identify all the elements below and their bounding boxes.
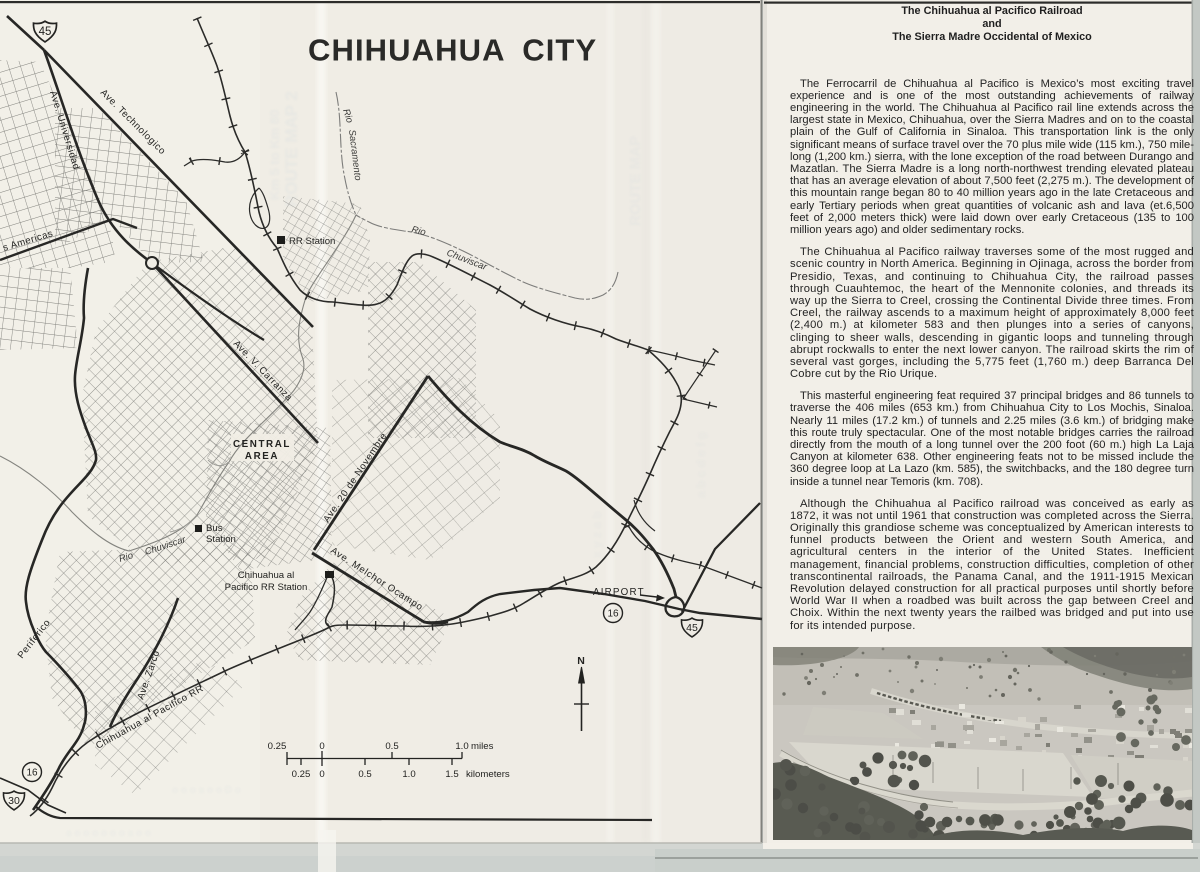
- svg-text:Bus: Bus: [206, 523, 223, 534]
- svg-text:miles: miles: [471, 741, 494, 752]
- svg-text:AIRPORT: AIRPORT: [593, 587, 645, 598]
- svg-text:kilometers: kilometers: [466, 769, 510, 780]
- svg-text:RR Station: RR Station: [289, 236, 335, 247]
- svg-text:45: 45: [39, 26, 52, 38]
- svg-text:30: 30: [8, 795, 20, 807]
- svg-text:0.5: 0.5: [358, 769, 371, 780]
- svg-text:Station: Station: [206, 534, 236, 545]
- svg-text:1.0: 1.0: [455, 741, 468, 752]
- svg-text:16: 16: [607, 609, 619, 620]
- svg-text:ROUTE MAP 2: ROUTE MAP 2: [282, 91, 301, 207]
- svg-text:0.25: 0.25: [268, 741, 287, 752]
- svg-text:45: 45: [686, 622, 698, 634]
- svg-text:x y z a b: x y z a b: [590, 511, 604, 558]
- svg-text:0: 0: [319, 769, 324, 780]
- svg-text:AREA: AREA: [245, 451, 279, 462]
- svg-text:0.5: 0.5: [385, 741, 398, 752]
- svg-text:o o o a o o D o: o o o a o o D o: [172, 785, 241, 796]
- svg-text:CHIHUAHUA CITY: CHIHUAHUA CITY: [308, 33, 597, 68]
- svg-text:Pacifico RR Station: Pacifico RR Station: [225, 582, 308, 593]
- svg-text:1.0: 1.0: [402, 769, 415, 780]
- svg-text:a b c d e f g: a b c d e f g: [694, 432, 708, 498]
- svg-text:N: N: [577, 655, 585, 667]
- svg-text:0: 0: [319, 741, 324, 752]
- svg-text:0.25: 0.25: [292, 769, 311, 780]
- svg-text:Km 5 to Km 80: Km 5 to Km 80: [267, 110, 282, 200]
- svg-text:CENTRAL: CENTRAL: [233, 439, 291, 450]
- svg-text:a o o o o o o a o o: a o o o o o o a o o: [66, 828, 151, 839]
- svg-text:Chihuahua al: Chihuahua al: [238, 570, 295, 581]
- svg-text:16: 16: [26, 768, 38, 779]
- svg-text:ROUTE MAP: ROUTE MAP: [627, 136, 644, 226]
- svg-text:1.5: 1.5: [445, 769, 458, 780]
